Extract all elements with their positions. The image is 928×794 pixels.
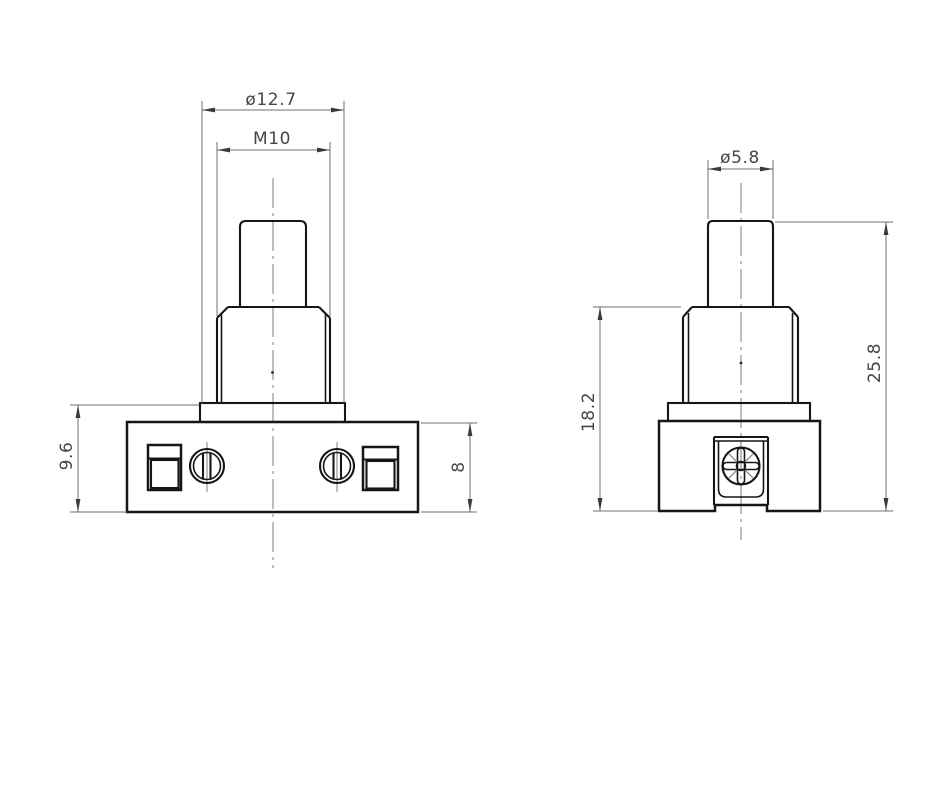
side-body-chamfer-right <box>789 307 798 317</box>
dim-thread-label: M10 <box>253 129 291 149</box>
phillips-diagonal-nw <box>729 454 737 462</box>
dim-collar-arrow-left <box>202 108 215 113</box>
dim-base-arrow-bottom <box>468 499 473 512</box>
dim-base-label: 8 <box>449 461 469 472</box>
dim-flange-arrow-top <box>76 405 81 418</box>
dim-body-height: 18.2 <box>579 307 681 511</box>
dim-flange-arrow-bottom <box>76 499 81 512</box>
dim-base-arrow-top <box>468 423 473 436</box>
dim-base-height: 8 <box>421 423 477 512</box>
dim-thread-arrow-right <box>317 148 330 153</box>
dim-overall-label: 25.8 <box>865 343 885 383</box>
side-view: ø5.8 18.2 25.8 <box>579 148 893 540</box>
front-body-chamfer-right <box>319 307 330 318</box>
dim-collar-arrow-right <box>331 108 344 113</box>
front-view: ø12.7 M10 9.6 8 <box>57 90 477 568</box>
dim-plunger-arrow-right <box>760 167 773 172</box>
phillips-diagonal-sw <box>729 471 737 479</box>
technical-drawing: ø12.7 M10 9.6 8 <box>0 0 928 794</box>
dim-body-label: 18.2 <box>579 392 599 432</box>
front-body-chamfer-left <box>217 307 228 318</box>
dim-plunger-arrow-left <box>708 167 721 172</box>
dim-overall-arrow-bottom <box>884 498 889 511</box>
side-body-chamfer-left <box>683 307 692 317</box>
terminal-window-left-outer <box>148 445 181 490</box>
terminal-window-right-outer <box>363 447 398 490</box>
dim-body-arrow-top <box>598 307 603 320</box>
front-center-mark <box>271 371 274 374</box>
dim-plunger-label: ø5.8 <box>720 148 760 168</box>
side-collar-outline <box>668 403 810 421</box>
phillips-diagonal-se <box>746 471 754 479</box>
terminal-window-right-inner <box>367 461 395 489</box>
phillips-diagonal-ne <box>746 454 754 462</box>
dim-body-arrow-bottom <box>598 498 603 511</box>
dim-thread-arrow-left <box>217 148 230 153</box>
terminal-window-left-inner <box>151 460 179 488</box>
dim-collar-label: ø12.7 <box>245 90 296 110</box>
dim-flange-label: 9.6 <box>57 442 77 471</box>
drawing-canvas: ø12.7 M10 9.6 8 <box>0 0 928 794</box>
side-center-mark <box>740 362 743 365</box>
dim-overall-arrow-top <box>884 222 889 235</box>
